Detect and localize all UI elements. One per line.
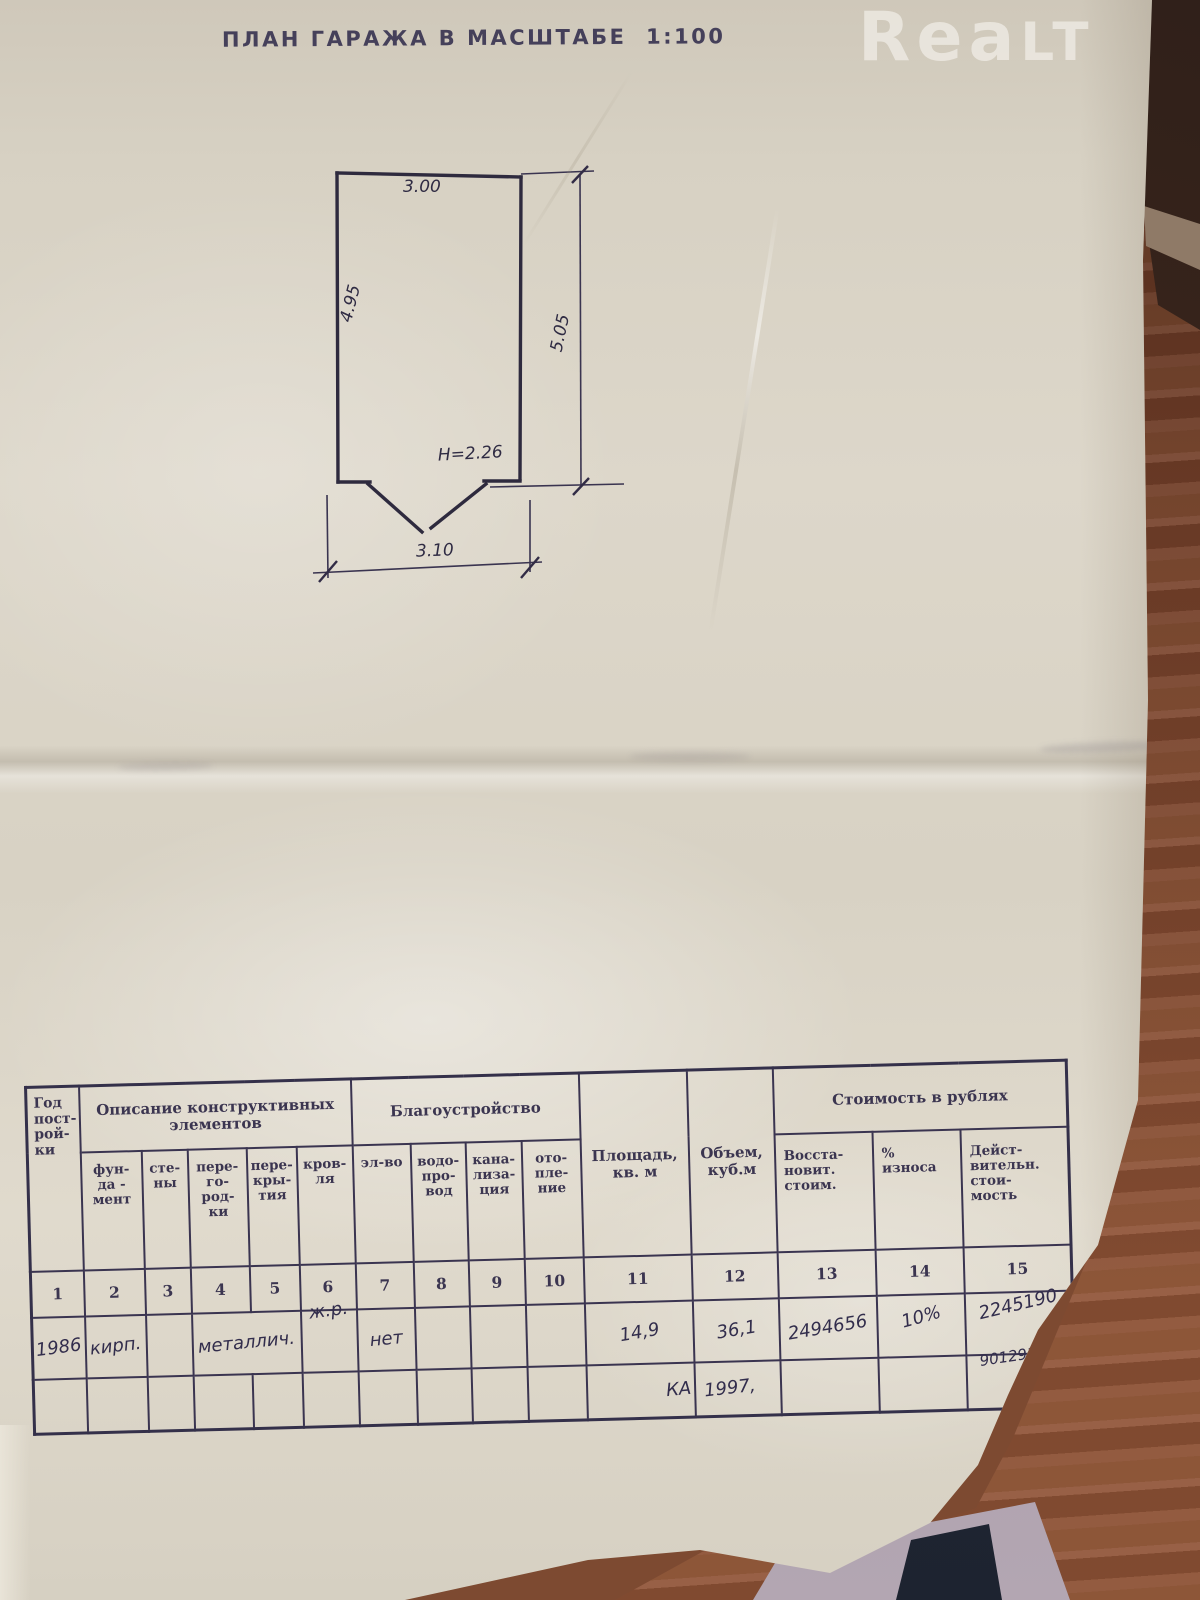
col-number: 1 [30, 1271, 84, 1318]
col-heating-header: ото- пле- ние [521, 1139, 583, 1259]
garage-plan-drawing: 5.05 3.00 4.95 H=2.26 3.10 [298, 132, 643, 587]
note-1997: 1997, [703, 1376, 756, 1402]
group-amenities-header: Благоустройство [350, 1073, 580, 1145]
dim-door-height-label: H=2.26 [437, 442, 503, 465]
col-floors-header: пере- кры- тия [246, 1147, 299, 1266]
col-number: 7 [355, 1262, 414, 1310]
col-sewerage-header: кана- лиза- ция [465, 1141, 524, 1260]
value-foundation: кирп. [89, 1334, 142, 1360]
col-number: 8 [413, 1260, 469, 1307]
paper-crease [708, 207, 779, 632]
col-water-header: водо- про- вод [410, 1142, 468, 1261]
dim-left-label: 4.95 [336, 283, 365, 325]
col-number: 4 [190, 1266, 250, 1314]
col-number: 10 [524, 1257, 584, 1305]
fold-smudge [118, 761, 213, 772]
value-replacement-cost: 2494656 [787, 1311, 869, 1344]
dim-right-label: 5.05 [547, 312, 574, 353]
dim-bottom-label: 3.10 [416, 540, 455, 561]
watermark-text: Rea [858, 0, 1020, 77]
garage-walls [337, 173, 521, 532]
col-number: 9 [468, 1259, 525, 1306]
valuation-table: Год пост- рой- ки Описание конструктивны… [24, 1059, 1077, 1436]
realt-watermark: ReaLT [858, 4, 1096, 72]
document-paper: ПЛАН ГАРАЖА В МАСШТАБЕ 1:100 5.05 3.00 4… [0, 0, 1200, 1600]
col-roof-header: кров- ля [296, 1145, 355, 1264]
dimension-right: 5.05 [490, 166, 624, 495]
col-foundation-header: фун- да - мент [80, 1151, 144, 1271]
value-roof: ж.р. [308, 1299, 349, 1324]
col-volume-header: Объем, куб.м [686, 1068, 777, 1255]
value-partitions-floors: металлич. [197, 1329, 296, 1358]
col-area-header: Площадь, кв. м [578, 1070, 691, 1257]
note-ka: КА [666, 1379, 693, 1401]
col-partitions-header: пере- го- род- ки [187, 1148, 249, 1268]
col-number: 2 [83, 1269, 145, 1317]
value-area: 14,9 [618, 1320, 661, 1346]
valuation-table-area: Год пост- рой- ки Описание конструктивны… [24, 1059, 1077, 1436]
fold-smudge [630, 752, 750, 761]
watermark-text-caps: LT [1020, 12, 1095, 73]
group-construction-header: Описание конструктивных элементов [79, 1079, 353, 1153]
value-electricity: нет [369, 1328, 404, 1351]
col-replacement-cost-header: Восста- новит. стоим. [774, 1132, 875, 1253]
col-number: 13 [777, 1250, 876, 1299]
group-cost-header: Стоимость в рублях [772, 1060, 1068, 1134]
col-number: 14 [875, 1247, 964, 1295]
value-wear-percent: 10% [899, 1303, 943, 1333]
col-number: 15 [963, 1245, 1072, 1294]
col-number: 11 [583, 1255, 692, 1304]
col-number: 3 [144, 1268, 191, 1315]
col-number: 5 [249, 1265, 300, 1312]
col-wear-percent-header: % износа [872, 1130, 963, 1250]
col-electricity-header: эл-во [352, 1144, 413, 1263]
page-title: ПЛАН ГАРАЖА В МАСШТАБЕ 1:100 [222, 24, 726, 52]
dimension-bottom: 3.10 [313, 495, 542, 582]
col-actual-cost-header: Дейст- вительн. стои- мость [960, 1127, 1071, 1248]
col-number: 12 [691, 1252, 778, 1300]
value-year-built: 1986 [35, 1335, 83, 1361]
paper-edge-highlight [0, 1425, 34, 1600]
dim-top-label: 3.00 [403, 177, 441, 197]
col-walls-header: сте- ны [141, 1150, 190, 1269]
value-volume: 36,1 [715, 1317, 758, 1343]
col-year-header: Год пост- рой- ки [26, 1086, 84, 1272]
